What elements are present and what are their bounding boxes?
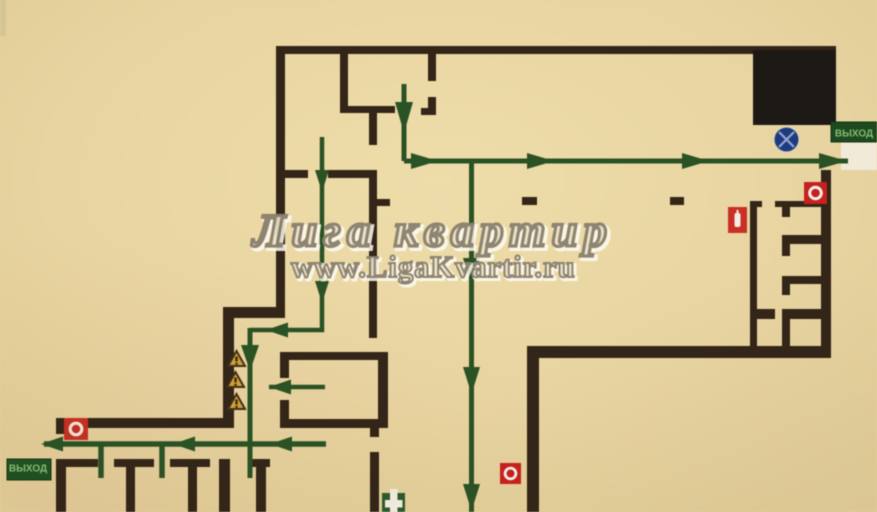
svg-text:www.LigaKvartir.ru: www.LigaKvartir.ru [291, 250, 576, 284]
svg-text:ВЫХОД: ВЫХОД [835, 129, 873, 140]
svg-text:ВЫХОД: ВЫХОД [9, 464, 47, 475]
